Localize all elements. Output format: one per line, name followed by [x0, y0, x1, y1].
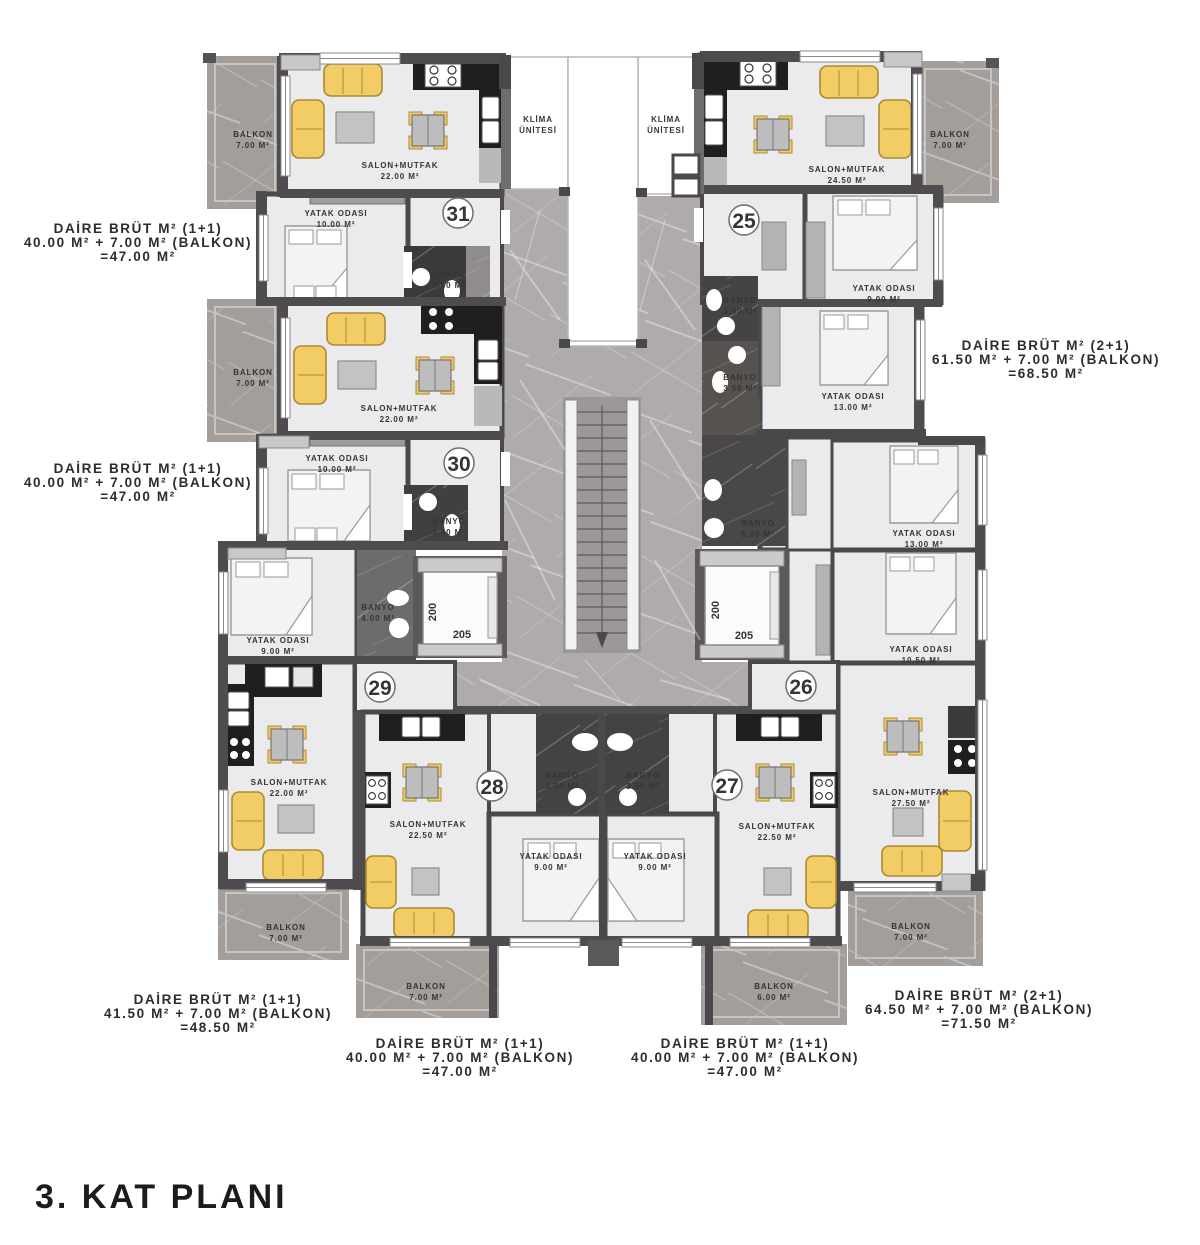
svg-text:7.00 M²: 7.00 M² [409, 993, 442, 1002]
svg-text:24.50 M²: 24.50 M² [828, 176, 867, 185]
svg-text:3.50 M²: 3.50 M² [626, 782, 659, 791]
svg-text:BANYO: BANYO [723, 296, 756, 305]
svg-text:YATAK ODASI: YATAK ODASI [246, 636, 309, 645]
svg-text:DAİRE BRÜT M² (1+1): DAİRE BRÜT M² (1+1) [54, 461, 223, 476]
svg-text:27.50 M²: 27.50 M² [892, 799, 931, 808]
svg-text:YATAK ODASI: YATAK ODASI [852, 284, 915, 293]
svg-text:22.50 M²: 22.50 M² [409, 831, 448, 840]
svg-text:40.00 M² + 7.00 M² (BALKON): 40.00 M² + 7.00 M² (BALKON) [24, 475, 252, 490]
svg-text:22.00 M²: 22.00 M² [381, 172, 420, 181]
svg-text:6.00 M²: 6.00 M² [757, 993, 790, 1002]
svg-text:7.00 M²: 7.00 M² [269, 934, 302, 943]
svg-text:22.50 M²: 22.50 M² [758, 833, 797, 842]
svg-text:61.50 M² + 7.00 M² (BALKON): 61.50 M² + 7.00 M² (BALKON) [932, 352, 1160, 367]
svg-text:205: 205 [735, 630, 753, 642]
svg-text:3.50 M²: 3.50 M² [545, 782, 578, 791]
svg-text:DAİRE BRÜT M² (1+1): DAİRE BRÜT M² (1+1) [661, 1036, 830, 1051]
svg-text:BALKON: BALKON [406, 982, 446, 991]
svg-text:10.50 M²: 10.50 M² [902, 656, 941, 665]
svg-text:BANYO: BANYO [723, 373, 756, 382]
svg-text:3.50 M²: 3.50 M² [432, 281, 465, 290]
svg-text:40.00 M² + 7.00 M² (BALKON): 40.00 M² + 7.00 M² (BALKON) [346, 1050, 574, 1065]
svg-text:7.00 M²: 7.00 M² [894, 933, 927, 942]
svg-text:KLİMA: KLİMA [523, 115, 553, 124]
svg-text:=47.00 M²: =47.00 M² [100, 489, 176, 504]
svg-text:29: 29 [368, 677, 391, 700]
svg-text:4.00 M²: 4.00 M² [361, 614, 394, 623]
svg-text:=47.00 M²: =47.00 M² [707, 1064, 783, 1079]
svg-text:BALKON: BALKON [233, 130, 273, 139]
svg-text:22.00 M²: 22.00 M² [380, 415, 419, 424]
svg-text:DAİRE BRÜT M² (1+1): DAİRE BRÜT M² (1+1) [134, 992, 303, 1007]
svg-text:SALON+MUTFAK: SALON+MUTFAK [873, 788, 950, 797]
svg-text:3.50 M²: 3.50 M² [723, 384, 756, 393]
svg-text:3.50 M²: 3.50 M² [432, 528, 465, 537]
svg-text:BANYO: BANYO [432, 517, 465, 526]
svg-text:BALKON: BALKON [930, 130, 970, 139]
svg-text:SALON+MUTFAK: SALON+MUTFAK [362, 161, 439, 170]
svg-text:22.00 M²: 22.00 M² [270, 789, 309, 798]
svg-text:40.00 M² + 7.00 M² (BALKON): 40.00 M² + 7.00 M² (BALKON) [24, 235, 252, 250]
svg-text:KLİMA: KLİMA [651, 115, 681, 124]
svg-text:10.00 M²: 10.00 M² [318, 465, 357, 474]
svg-text:31: 31 [446, 203, 470, 226]
svg-text:205: 205 [453, 629, 471, 641]
svg-text:7.00 M²: 7.00 M² [933, 141, 966, 150]
svg-text:25: 25 [732, 210, 756, 233]
svg-text:BANYO: BANYO [741, 519, 774, 528]
svg-text:=48.50 M²: =48.50 M² [180, 1020, 256, 1035]
svg-text:SALON+MUTFAK: SALON+MUTFAK [390, 820, 467, 829]
svg-text:DAİRE BRÜT M² (2+1): DAİRE BRÜT M² (2+1) [895, 988, 1064, 1003]
svg-text:7.00 M²: 7.00 M² [236, 379, 269, 388]
svg-text:13.00 M²: 13.00 M² [834, 403, 873, 412]
svg-text:YATAK ODASI: YATAK ODASI [889, 645, 952, 654]
svg-text:ÜNİTESİ: ÜNİTESİ [519, 126, 557, 135]
svg-text:=68.50 M²: =68.50 M² [1008, 366, 1084, 381]
svg-text:BALKON: BALKON [233, 368, 273, 377]
svg-text:ÜNİTESİ: ÜNİTESİ [647, 126, 685, 135]
svg-text:SALON+MUTFAK: SALON+MUTFAK [809, 165, 886, 174]
svg-text:200: 200 [710, 601, 722, 619]
svg-text:13.00 M²: 13.00 M² [905, 540, 944, 549]
svg-text:YATAK ODASI: YATAK ODASI [623, 852, 686, 861]
svg-text:DAİRE BRÜT M² (1+1): DAİRE BRÜT M² (1+1) [376, 1036, 545, 1051]
svg-text:41.50 M² + 7.00 M² (BALKON): 41.50 M² + 7.00 M² (BALKON) [104, 1006, 332, 1021]
svg-text:40.00 M² + 7.00 M² (BALKON): 40.00 M² + 7.00 M² (BALKON) [631, 1050, 859, 1065]
svg-text:27: 27 [715, 775, 738, 798]
svg-text:=47.00 M²: =47.00 M² [100, 249, 176, 264]
svg-text:DAİRE BRÜT M² (2+1): DAİRE BRÜT M² (2+1) [962, 338, 1131, 353]
svg-text:=47.00 M²: =47.00 M² [422, 1064, 498, 1079]
svg-text:=71.50 M²: =71.50 M² [941, 1016, 1017, 1031]
svg-text:BANYO: BANYO [545, 771, 578, 780]
svg-text:28: 28 [480, 776, 504, 799]
svg-text:30: 30 [447, 453, 470, 476]
svg-text:BANYO: BANYO [432, 270, 465, 279]
svg-text:3.00 M²: 3.00 M² [723, 307, 756, 316]
svg-text:26: 26 [789, 676, 812, 699]
svg-text:BALKON: BALKON [266, 923, 306, 932]
svg-text:YATAK ODASI: YATAK ODASI [892, 529, 955, 538]
svg-text:9.00 M²: 9.00 M² [638, 863, 671, 872]
svg-text:SALON+MUTFAK: SALON+MUTFAK [739, 822, 816, 831]
svg-text:BALKON: BALKON [754, 982, 794, 991]
svg-text:BANYO: BANYO [361, 603, 394, 612]
svg-text:7.00 M²: 7.00 M² [236, 141, 269, 150]
svg-text:10.00 M²: 10.00 M² [317, 220, 356, 229]
svg-text:9.00 M²: 9.00 M² [867, 295, 900, 304]
svg-text:200: 200 [427, 603, 439, 621]
svg-text:BALKON: BALKON [891, 922, 931, 931]
svg-text:DAİRE BRÜT M² (1+1): DAİRE BRÜT M² (1+1) [54, 221, 223, 236]
svg-text:64.50 M² + 7.00 M² (BALKON): 64.50 M² + 7.00 M² (BALKON) [865, 1002, 1093, 1017]
svg-text:5.00 M²: 5.00 M² [741, 530, 774, 539]
svg-text:YATAK ODASI: YATAK ODASI [821, 392, 884, 401]
svg-text:YATAK ODASI: YATAK ODASI [519, 852, 582, 861]
svg-text:BANYO: BANYO [626, 771, 659, 780]
svg-text:9.00 M²: 9.00 M² [534, 863, 567, 872]
svg-text:YATAK ODASI: YATAK ODASI [305, 454, 368, 463]
svg-text:9.00 M²: 9.00 M² [261, 647, 294, 656]
svg-text:SALON+MUTFAK: SALON+MUTFAK [251, 778, 328, 787]
svg-text:3. KAT PLANI: 3. KAT PLANI [35, 1178, 288, 1216]
svg-text:SALON+MUTFAK: SALON+MUTFAK [361, 404, 438, 413]
svg-text:YATAK ODASI: YATAK ODASI [304, 209, 367, 218]
